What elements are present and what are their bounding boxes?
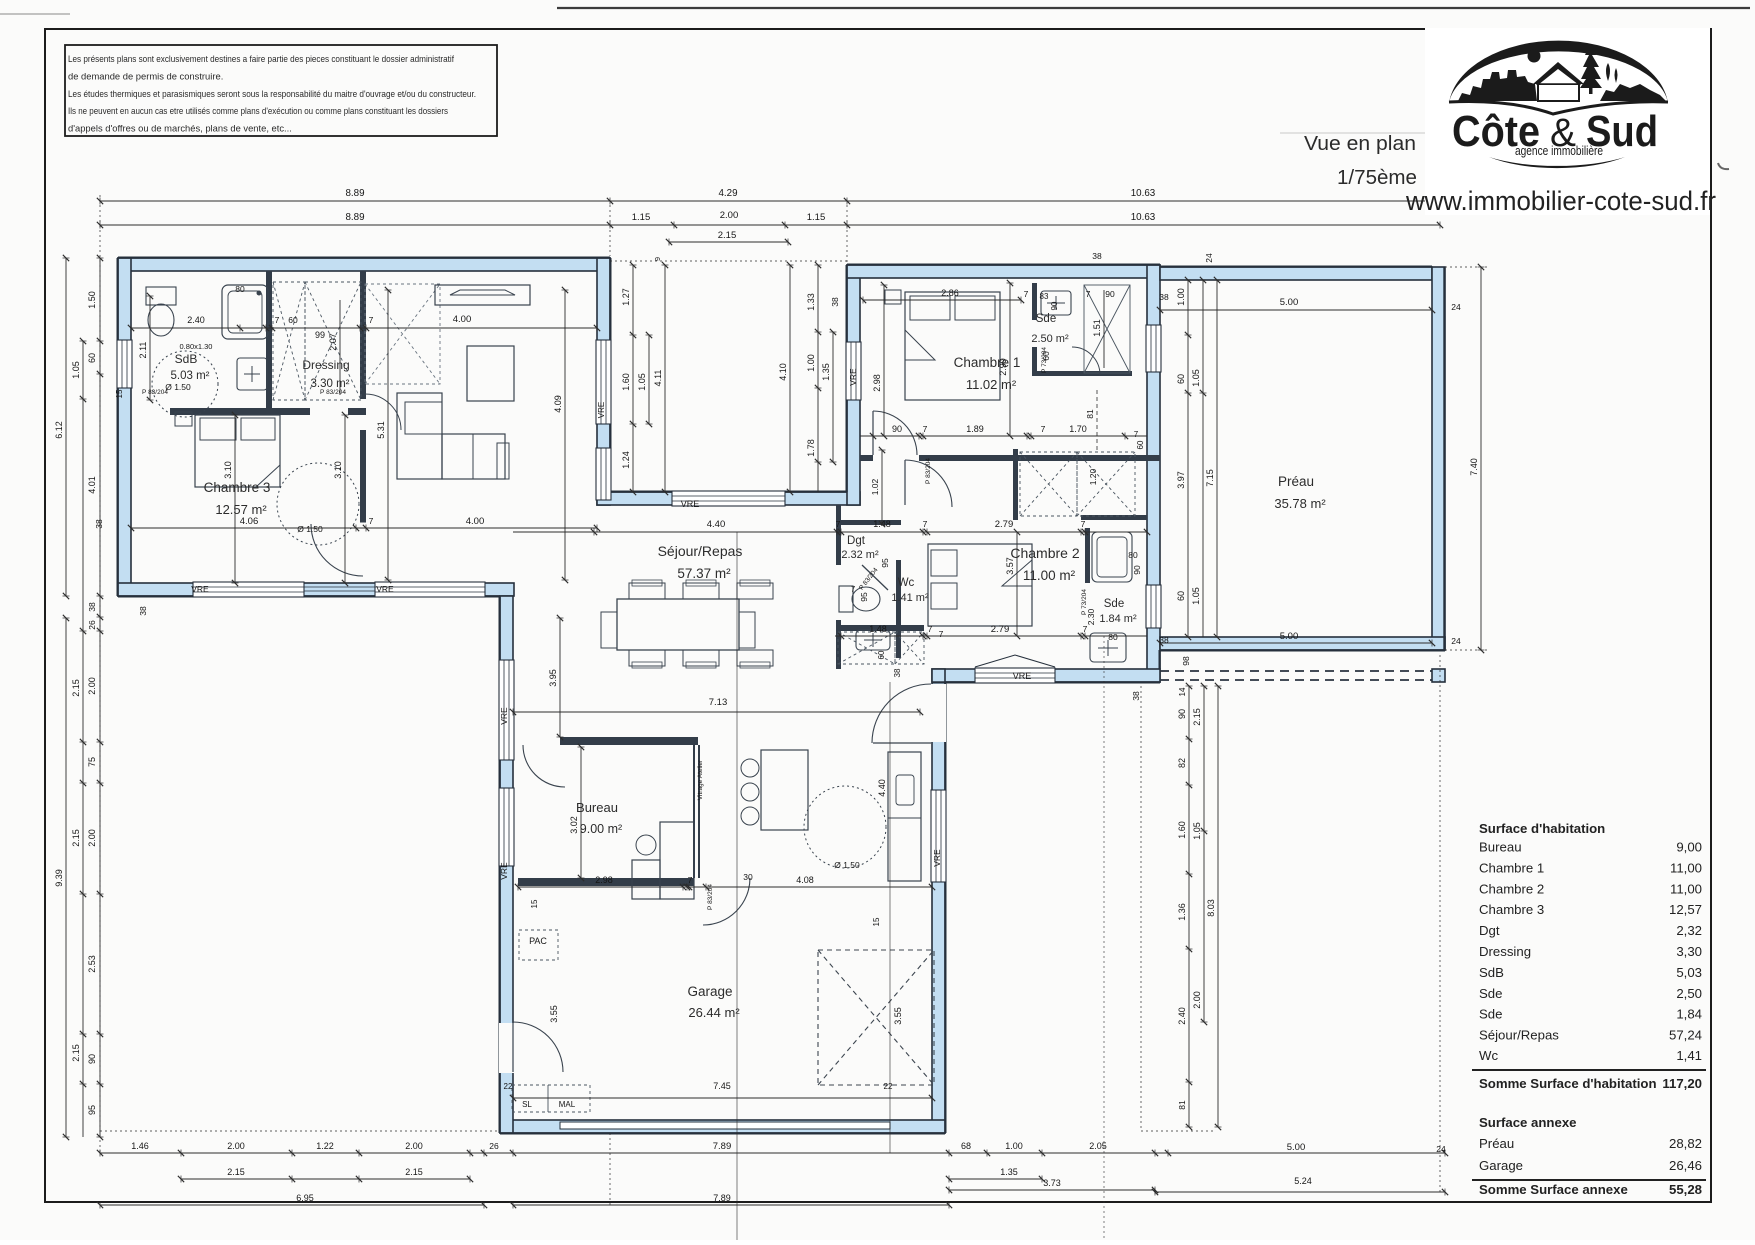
svg-text:7: 7	[688, 875, 693, 885]
svg-text:2,32: 2,32	[1676, 923, 1702, 938]
svg-text:Ø 1.50: Ø 1.50	[297, 524, 323, 534]
svg-text:P 83/204: P 83/204	[320, 389, 346, 396]
svg-text:Ø 1.50: Ø 1.50	[165, 382, 191, 392]
svg-text:2.00: 2.00	[405, 1141, 423, 1151]
svg-text:4.40: 4.40	[707, 519, 726, 530]
svg-text:81: 81	[1177, 1100, 1187, 1110]
svg-text:2.00: 2.00	[87, 677, 97, 695]
svg-text:2.98: 2.98	[872, 374, 882, 392]
svg-text:26,46: 26,46	[1669, 1158, 1702, 1173]
svg-text:38: 38	[94, 519, 104, 529]
svg-text:Vue en plan: Vue en plan	[1304, 133, 1416, 155]
svg-text:P 83/204: P 83/204	[142, 389, 168, 396]
svg-text:3.95: 3.95	[548, 669, 558, 687]
svg-text:1.05: 1.05	[71, 361, 81, 379]
svg-text:11.00 m²: 11.00 m²	[1023, 568, 1076, 583]
svg-text:Chambre 3: Chambre 3	[204, 480, 271, 495]
svg-text:1.27: 1.27	[621, 288, 631, 306]
svg-text:Les présents plans sont exclus: Les présents plans sont exclusivement de…	[68, 53, 454, 64]
svg-text:Bureau: Bureau	[1479, 840, 1522, 855]
svg-text:38: 38	[1092, 251, 1102, 261]
svg-text:28,82: 28,82	[1669, 1136, 1702, 1151]
svg-text:2.15: 2.15	[405, 1167, 423, 1177]
svg-text:90: 90	[1132, 565, 1142, 575]
svg-text:4.29: 4.29	[718, 188, 737, 199]
svg-text:14: 14	[1178, 687, 1187, 696]
svg-text:Somme Surface annexe: Somme Surface annexe	[1479, 1182, 1628, 1197]
svg-text:38: 38	[1159, 635, 1169, 645]
svg-text:5.03 m²: 5.03 m²	[171, 370, 210, 382]
svg-text:de demande de permis de constr: de demande de permis de construire.	[68, 70, 223, 81]
svg-text:68: 68	[961, 1141, 971, 1151]
svg-text:7.15: 7.15	[1205, 469, 1215, 487]
svg-text:3.97: 3.97	[1176, 471, 1186, 489]
svg-text:Dgt: Dgt	[847, 535, 866, 547]
svg-text:11.02 m²: 11.02 m²	[966, 377, 1017, 392]
svg-text:80: 80	[1108, 632, 1118, 642]
svg-text:9.00 m²: 9.00 m²	[580, 822, 622, 836]
svg-text:22: 22	[884, 1082, 893, 1091]
svg-text:8.89: 8.89	[345, 188, 364, 199]
svg-text:2.00: 2.00	[1192, 991, 1202, 1009]
svg-text:VRE: VRE	[597, 402, 606, 418]
svg-text:26: 26	[489, 1141, 499, 1151]
svg-text:1.05: 1.05	[637, 373, 647, 391]
svg-text:90: 90	[1050, 301, 1059, 310]
svg-text:60: 60	[87, 353, 97, 363]
svg-text:2.30: 2.30	[1086, 608, 1096, 625]
svg-text:10.63: 10.63	[1131, 188, 1156, 199]
svg-text:3.55: 3.55	[549, 1005, 559, 1023]
svg-text:VRE: VRE	[499, 707, 509, 725]
svg-text:P 83/204: P 83/204	[925, 458, 932, 484]
svg-text:1.00: 1.00	[1005, 1141, 1023, 1151]
svg-text:15: 15	[872, 917, 881, 926]
svg-text:10.63: 10.63	[1131, 212, 1156, 223]
svg-text:7.89: 7.89	[713, 1141, 732, 1152]
svg-text:24: 24	[1204, 253, 1214, 263]
svg-text:Sde: Sde	[1036, 313, 1056, 325]
svg-text:3.10: 3.10	[223, 461, 233, 479]
svg-text:VRE: VRE	[681, 499, 700, 509]
svg-text:Sde: Sde	[1479, 986, 1502, 1001]
svg-text:26.44 m²: 26.44 m²	[688, 1005, 740, 1020]
svg-text:24: 24	[1436, 1144, 1446, 1154]
svg-text:2.79: 2.79	[991, 624, 1010, 635]
svg-text:VRE: VRE	[499, 862, 509, 880]
svg-text:d'appels d'offres ou de marché: d'appels d'offres ou de marchés, plans d…	[68, 123, 292, 134]
svg-text:Ils ne peuvent en aucun cas et: Ils ne peuvent en aucun cas etre utilisé…	[68, 105, 448, 116]
svg-text:90: 90	[87, 1054, 97, 1064]
svg-text:7: 7	[1086, 289, 1091, 299]
svg-text:9: 9	[653, 257, 662, 261]
svg-text:1.15: 1.15	[632, 212, 651, 223]
svg-text:9,00: 9,00	[1676, 840, 1702, 855]
svg-text:5.00: 5.00	[1287, 1142, 1306, 1153]
svg-text:Surface d'habitation: Surface d'habitation	[1479, 821, 1605, 836]
svg-text:90: 90	[1177, 709, 1187, 719]
svg-text:7: 7	[928, 624, 933, 634]
svg-text:2.00: 2.00	[720, 210, 739, 221]
svg-text:Surface annexe: Surface annexe	[1479, 1115, 1577, 1130]
svg-text:5,03: 5,03	[1676, 965, 1702, 980]
svg-text:Sde: Sde	[1104, 598, 1124, 610]
svg-text:5.00: 5.00	[1280, 297, 1299, 308]
svg-text:VRE: VRE	[1013, 671, 1032, 681]
svg-text:7: 7	[1081, 519, 1086, 529]
svg-text:2.79: 2.79	[995, 519, 1014, 530]
svg-text:0.80x1.30: 0.80x1.30	[180, 342, 213, 351]
svg-text:1.00: 1.00	[806, 354, 816, 372]
svg-text:3.73: 3.73	[1043, 1178, 1061, 1188]
svg-text:Garage: Garage	[687, 984, 732, 999]
svg-text:1.50: 1.50	[87, 291, 97, 309]
svg-text:MAL: MAL	[559, 1100, 576, 1109]
svg-text:15: 15	[530, 899, 539, 908]
svg-text:38: 38	[1131, 691, 1141, 701]
svg-text:2.53: 2.53	[87, 955, 97, 973]
svg-text:1.35: 1.35	[821, 363, 831, 381]
svg-text:SdB: SdB	[1479, 965, 1504, 980]
svg-text:7.89: 7.89	[713, 1193, 731, 1203]
svg-text:8.03: 8.03	[1206, 899, 1216, 917]
svg-text:12,57: 12,57	[1669, 902, 1702, 917]
svg-text:1.05: 1.05	[1192, 822, 1202, 840]
svg-text:1.20: 1.20	[1088, 468, 1098, 485]
svg-text:1,41: 1,41	[1676, 1048, 1702, 1063]
svg-text:3.55: 3.55	[893, 1007, 903, 1025]
svg-text:Chambre 3: Chambre 3	[1479, 902, 1544, 917]
svg-text:1.41 m²: 1.41 m²	[891, 592, 929, 604]
svg-text:1.36: 1.36	[1177, 903, 1187, 921]
svg-text:7.40: 7.40	[1469, 458, 1479, 476]
svg-text:80: 80	[235, 284, 245, 294]
svg-text:Séjour/Repas: Séjour/Repas	[658, 543, 743, 559]
svg-text:VRE: VRE	[376, 584, 394, 594]
svg-text:1.60: 1.60	[1177, 821, 1187, 839]
svg-text:1/75ème: 1/75ème	[1337, 167, 1417, 189]
svg-text:Chambre 2: Chambre 2	[1010, 545, 1079, 561]
svg-text:95: 95	[859, 592, 869, 602]
svg-text:Garage: Garage	[1479, 1158, 1523, 1173]
svg-text:Préau: Préau	[1278, 474, 1314, 489]
svg-text:4.40: 4.40	[877, 779, 887, 797]
svg-text:57,24: 57,24	[1669, 1028, 1702, 1043]
svg-text:SL: SL	[522, 1100, 532, 1109]
svg-text:1.24: 1.24	[621, 451, 631, 469]
svg-text:Séjour/Repas: Séjour/Repas	[1479, 1028, 1559, 1043]
svg-text:Chambre 1: Chambre 1	[1479, 861, 1544, 876]
svg-text:Chambre 2: Chambre 2	[1479, 882, 1544, 897]
svg-text:4.09: 4.09	[553, 395, 563, 413]
svg-text:1,84: 1,84	[1676, 1007, 1702, 1022]
svg-text:60: 60	[877, 650, 886, 659]
svg-text:1.05: 1.05	[1191, 587, 1201, 605]
svg-text:4.06: 4.06	[240, 516, 259, 527]
svg-text:7: 7	[369, 315, 374, 325]
svg-text:90: 90	[1105, 289, 1115, 299]
svg-text:95: 95	[87, 1105, 97, 1115]
svg-text:7: 7	[851, 585, 856, 594]
svg-text:38: 38	[893, 668, 902, 677]
svg-text:1.60: 1.60	[621, 373, 631, 391]
svg-text:2.86: 2.86	[941, 288, 959, 298]
svg-text:7.45: 7.45	[713, 1081, 731, 1091]
svg-text:55,28: 55,28	[1669, 1182, 1702, 1197]
svg-text:22: 22	[504, 1082, 513, 1091]
svg-text:8.89: 8.89	[345, 212, 364, 223]
svg-text:11,00: 11,00	[1670, 882, 1702, 897]
svg-text:4.01: 4.01	[87, 476, 97, 494]
svg-text:Wc: Wc	[1479, 1048, 1498, 1063]
svg-text:4.00: 4.00	[466, 516, 485, 527]
svg-text:2.11: 2.11	[138, 342, 148, 359]
svg-text:2.50 m²: 2.50 m²	[1031, 333, 1069, 345]
svg-text:5.31: 5.31	[376, 421, 386, 439]
svg-text:2.00: 2.00	[87, 829, 97, 847]
svg-text:2.15: 2.15	[71, 1044, 81, 1062]
svg-text:www.immobilier-cote-sud.fr: www.immobilier-cote-sud.fr	[1405, 186, 1716, 216]
svg-text:99: 99	[315, 330, 325, 340]
svg-text:2.98: 2.98	[595, 875, 613, 885]
svg-text:1.33: 1.33	[806, 293, 816, 311]
svg-text:PAC: PAC	[529, 936, 547, 946]
svg-text:Somme Surface d'habitation: Somme Surface d'habitation	[1479, 1076, 1657, 1091]
svg-text:75: 75	[87, 757, 97, 767]
svg-text:2.40: 2.40	[1177, 1007, 1187, 1025]
svg-text:3.10: 3.10	[333, 461, 343, 479]
svg-text:SdB: SdB	[175, 352, 198, 366]
svg-text:7: 7	[1134, 430, 1139, 439]
svg-text:30: 30	[743, 872, 753, 882]
svg-text:24: 24	[1451, 636, 1461, 646]
svg-text:1.35: 1.35	[1000, 1167, 1018, 1177]
svg-text:1.05: 1.05	[1191, 369, 1201, 387]
svg-text:1.89: 1.89	[966, 424, 984, 434]
svg-text:60: 60	[1136, 440, 1145, 449]
svg-text:1.02: 1.02	[870, 478, 880, 495]
svg-text:60: 60	[288, 315, 298, 325]
svg-text:1.22: 1.22	[316, 1141, 334, 1151]
svg-text:1.84 m²: 1.84 m²	[1099, 613, 1137, 625]
svg-text:Vitrage Atelier: Vitrage Atelier	[697, 759, 704, 800]
svg-text:2.07: 2.07	[328, 333, 338, 351]
svg-text:90: 90	[892, 424, 902, 434]
svg-text:1.00: 1.00	[1176, 288, 1186, 306]
svg-text:7: 7	[1024, 289, 1029, 299]
svg-text:1.70: 1.70	[1069, 424, 1087, 434]
svg-text:7: 7	[369, 516, 374, 526]
svg-text:24: 24	[1451, 302, 1461, 312]
svg-text:7: 7	[923, 424, 928, 434]
svg-text:6.95: 6.95	[296, 1193, 314, 1203]
svg-text:2.15: 2.15	[71, 679, 81, 697]
svg-text:3.57: 3.57	[1005, 557, 1015, 575]
svg-text:Ø 1.50: Ø 1.50	[834, 860, 860, 870]
svg-text:3.02: 3.02	[569, 816, 579, 834]
svg-text:4.10: 4.10	[778, 363, 788, 381]
svg-text:9.39: 9.39	[54, 869, 64, 887]
svg-text:P 83/204: P 83/204	[707, 884, 714, 910]
svg-text:7: 7	[939, 629, 944, 639]
svg-text:VRE: VRE	[848, 368, 858, 386]
svg-text:1.46: 1.46	[131, 1141, 149, 1151]
svg-text:15: 15	[115, 389, 124, 398]
svg-text:2.15: 2.15	[71, 829, 81, 847]
svg-text:117,20: 117,20	[1662, 1076, 1702, 1091]
svg-text:VRE: VRE	[932, 849, 942, 867]
svg-text:60: 60	[1041, 351, 1051, 361]
svg-text:7: 7	[1041, 424, 1046, 434]
svg-text:7: 7	[923, 519, 928, 529]
svg-text:4.00: 4.00	[453, 314, 472, 325]
svg-text:2.00: 2.00	[227, 1141, 245, 1151]
svg-text:Préau: Préau	[1479, 1136, 1514, 1151]
svg-text:38: 38	[1159, 292, 1169, 302]
svg-text:Les études thermiques et paras: Les études thermiques et parasismiques s…	[68, 88, 476, 99]
svg-text:2.32 m²: 2.32 m²	[841, 549, 879, 561]
svg-text:60: 60	[1176, 591, 1186, 601]
svg-text:26: 26	[87, 620, 97, 630]
svg-text:80: 80	[1128, 550, 1138, 560]
svg-text:2.40: 2.40	[187, 315, 205, 325]
svg-text:3,30: 3,30	[1676, 944, 1702, 959]
svg-text:2.15: 2.15	[227, 1167, 245, 1177]
svg-text:agence immobilière: agence immobilière	[1515, 144, 1603, 158]
svg-text:38: 38	[138, 606, 148, 616]
svg-text:7: 7	[836, 519, 841, 529]
svg-text:11,00: 11,00	[1670, 861, 1702, 876]
svg-text:1.51: 1.51	[1092, 319, 1102, 337]
svg-text:2.99: 2.99	[998, 358, 1008, 376]
svg-text:38: 38	[830, 297, 840, 307]
svg-text:Wc: Wc	[898, 577, 915, 589]
svg-text:4.11: 4.11	[653, 370, 663, 387]
svg-text:95: 95	[880, 558, 890, 568]
svg-text:1.15: 1.15	[807, 212, 826, 223]
svg-text:Bureau: Bureau	[576, 800, 618, 815]
svg-text:82: 82	[1177, 758, 1187, 768]
svg-text:1.78: 1.78	[806, 439, 816, 457]
svg-text:60: 60	[1176, 374, 1186, 384]
svg-text:2.15: 2.15	[718, 230, 737, 241]
svg-text:7: 7	[275, 315, 280, 325]
svg-text:Sde: Sde	[1479, 1007, 1502, 1022]
svg-text:Dressing: Dressing	[1479, 944, 1531, 959]
svg-text:83: 83	[1040, 292, 1049, 301]
svg-text:57.37 m²: 57.37 m²	[677, 566, 731, 581]
svg-text:5.24: 5.24	[1294, 1176, 1312, 1186]
svg-text:35.78 m²: 35.78 m²	[1274, 496, 1326, 511]
svg-text:98: 98	[1181, 656, 1191, 666]
svg-text:VRE: VRE	[191, 584, 209, 594]
svg-text:4.08: 4.08	[796, 875, 814, 885]
svg-text:Dressing: Dressing	[302, 358, 349, 372]
svg-text:12.57 m²: 12.57 m²	[215, 502, 267, 517]
svg-text:38: 38	[87, 602, 97, 612]
svg-text:2.15: 2.15	[1192, 708, 1202, 726]
svg-text:2,50: 2,50	[1676, 986, 1702, 1001]
svg-text:6.12: 6.12	[54, 421, 64, 439]
svg-text:7.13: 7.13	[709, 697, 728, 708]
svg-text:Dgt: Dgt	[1479, 923, 1500, 938]
svg-text:1.48: 1.48	[869, 624, 887, 634]
svg-text:81: 81	[1085, 409, 1095, 419]
svg-text:5.00: 5.00	[1280, 631, 1299, 642]
